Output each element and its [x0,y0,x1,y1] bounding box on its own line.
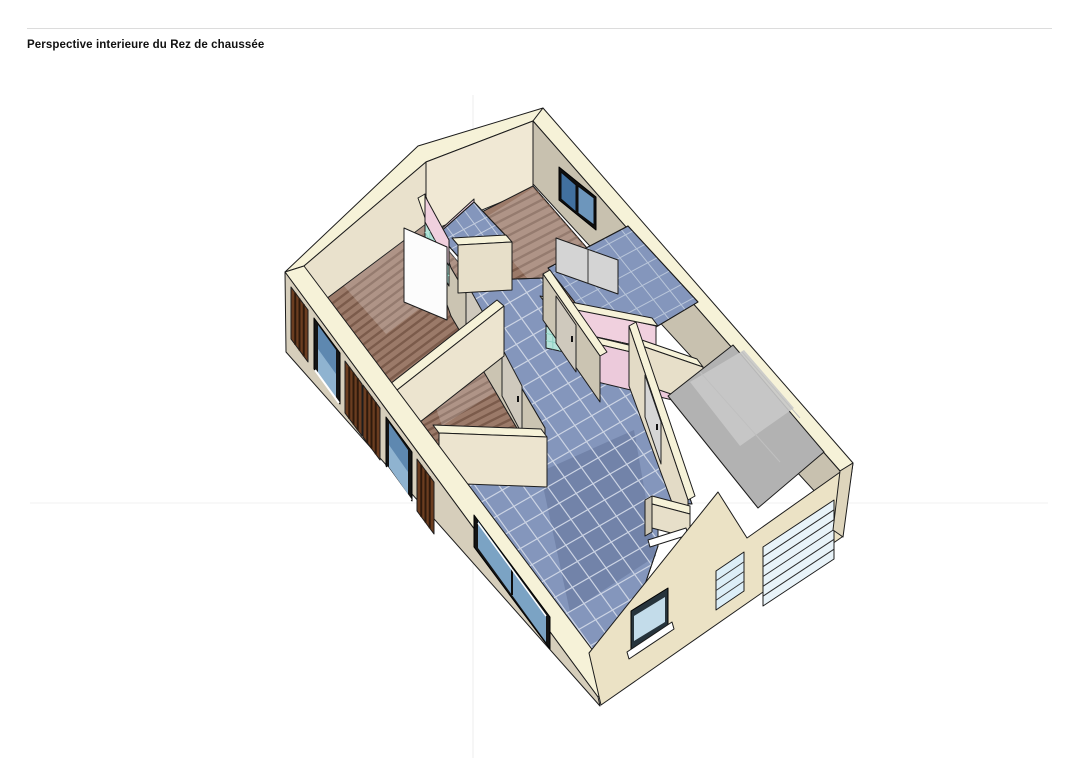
building-cutaway [226,82,1078,768]
floorplan-svg [0,0,1078,768]
floorplan-3d-view [0,0,1078,773]
porch-side-wall [645,496,652,536]
wc-front-wall-face [458,242,512,293]
